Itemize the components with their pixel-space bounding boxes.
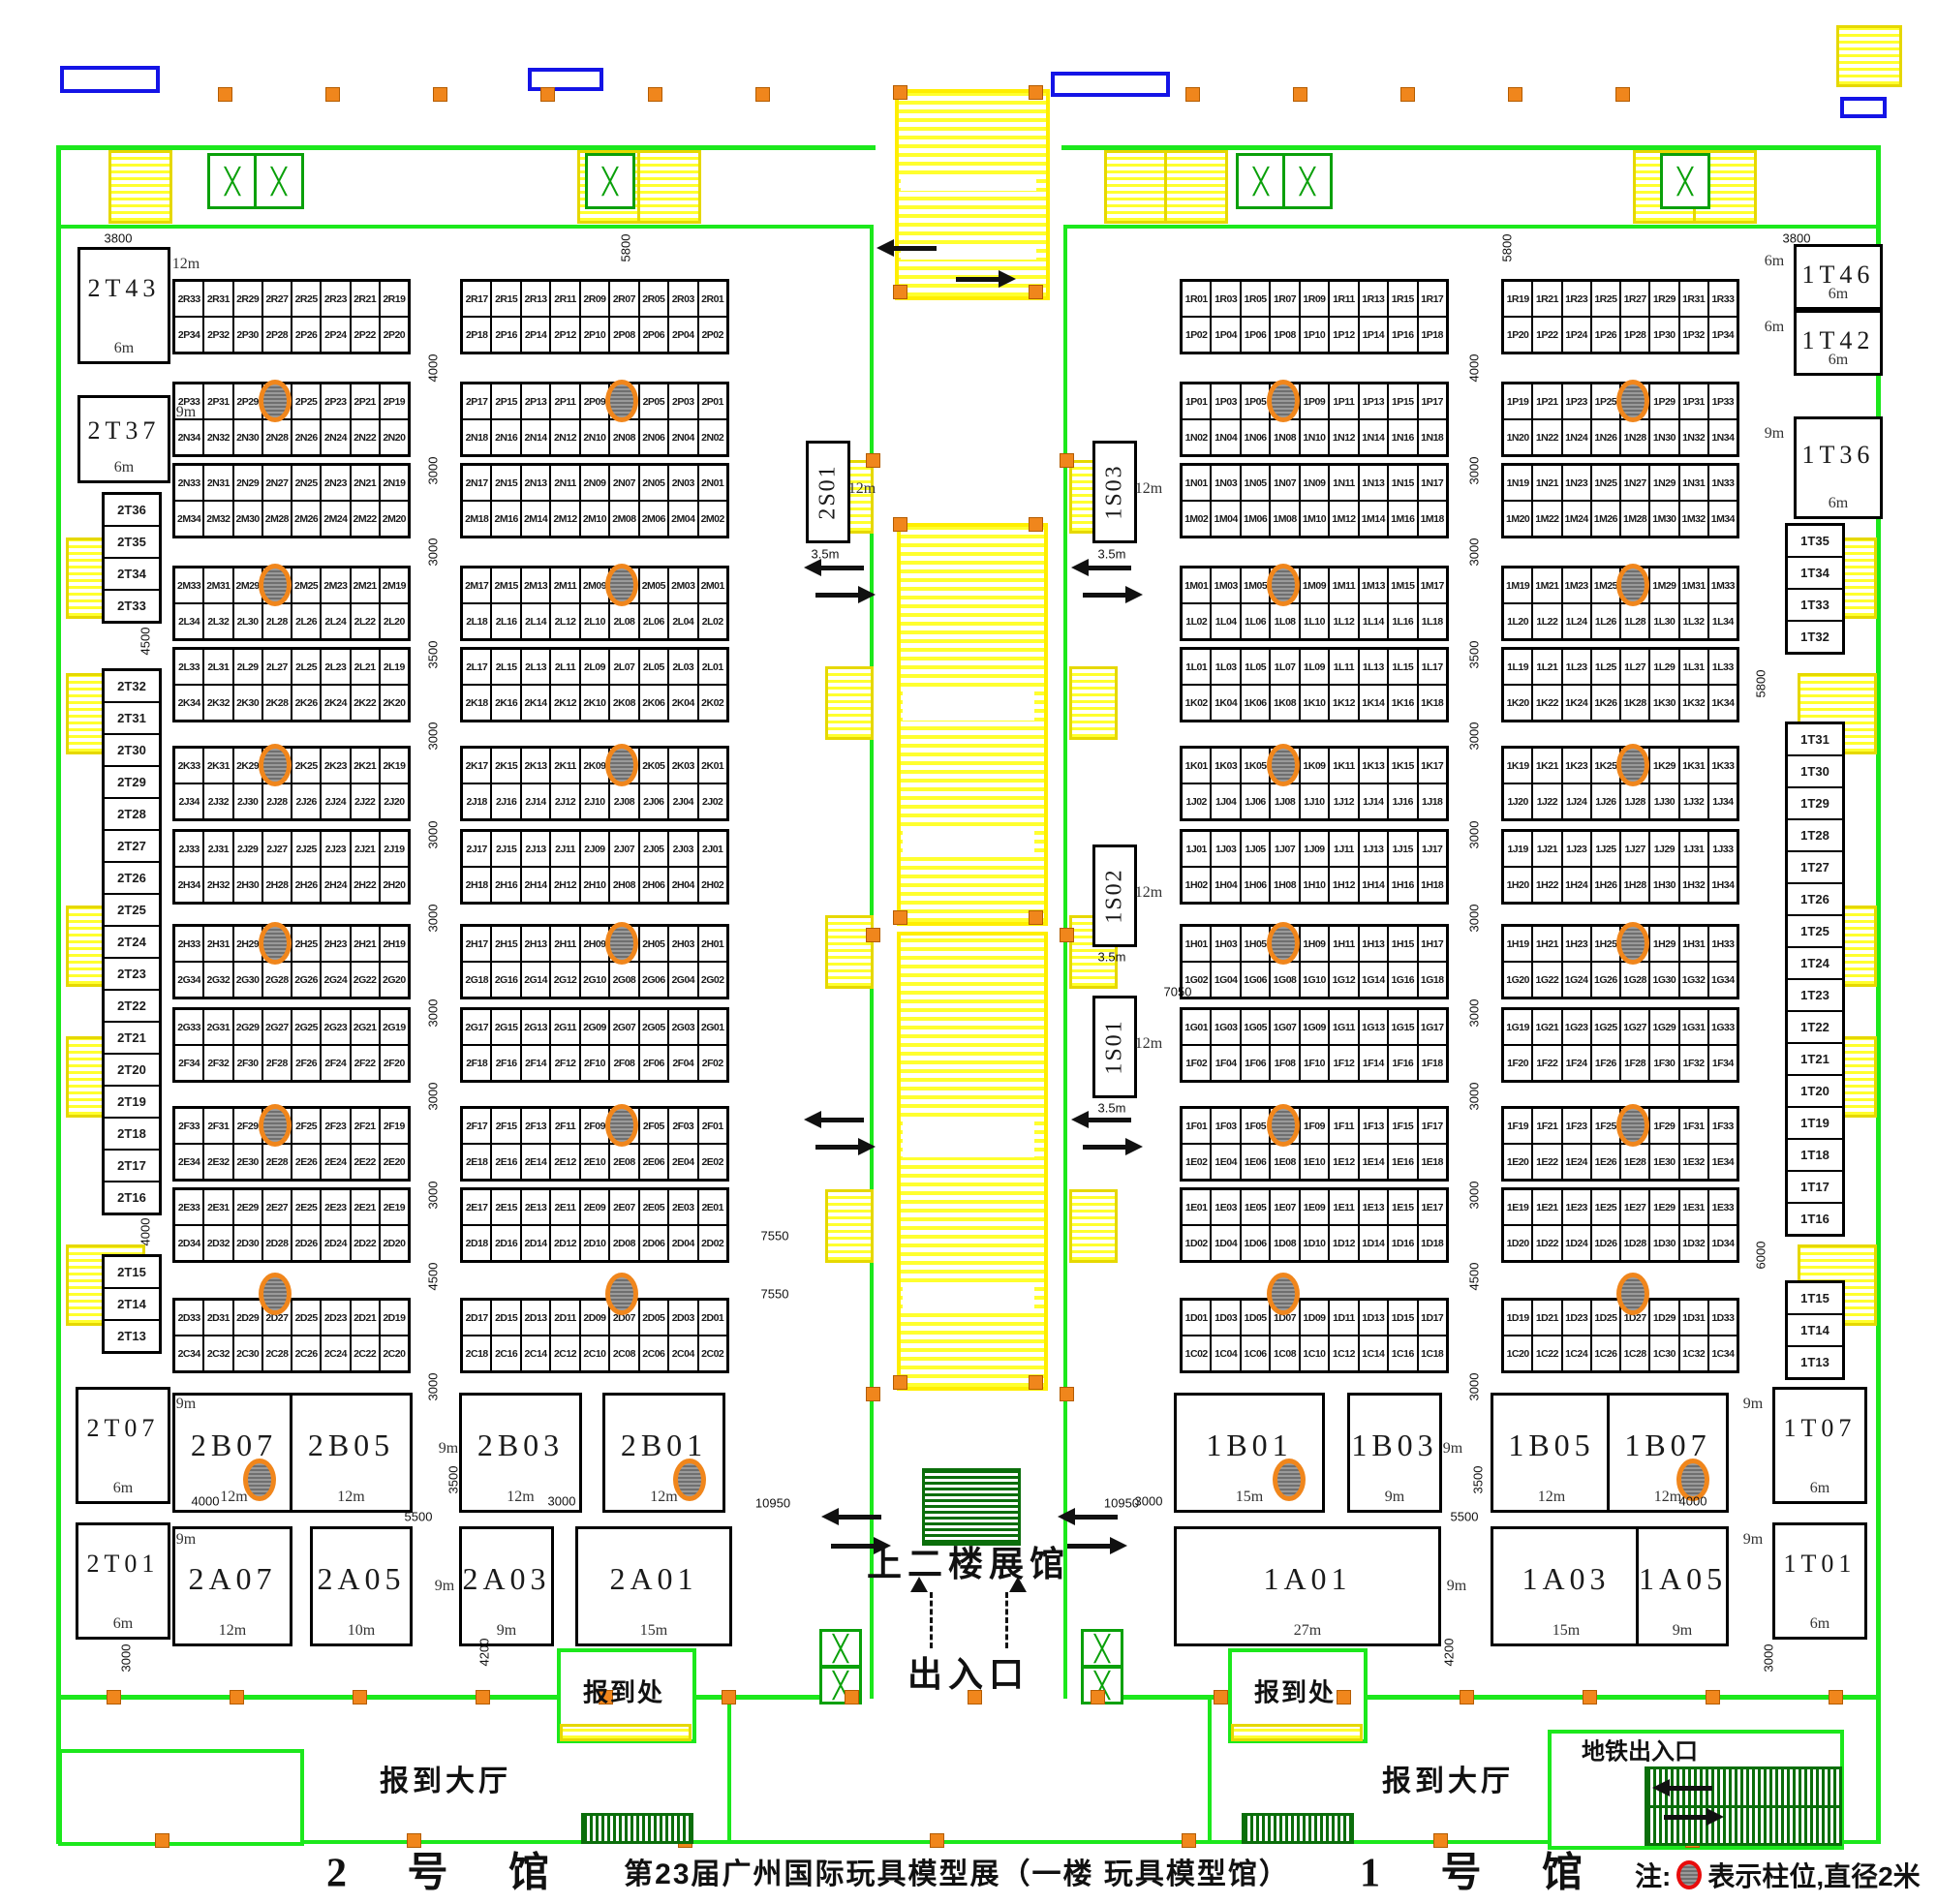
blue-accent: [60, 66, 160, 93]
booth-2H30: 2H30: [232, 866, 263, 904]
booth-2E23: 2E23: [320, 1188, 351, 1226]
booth-2E24: 2E24: [320, 1143, 351, 1181]
booth-1G09: 1G09: [1299, 1008, 1330, 1046]
booth-1L05: 1L05: [1240, 648, 1271, 686]
booth-2J22: 2J22: [350, 783, 381, 820]
booth-2N27: 2N27: [261, 464, 292, 502]
wall-column-icon: [1214, 1690, 1228, 1704]
booth-2C20: 2C20: [379, 1335, 410, 1372]
booth-id: 1S02: [1102, 868, 1128, 923]
booth-1D06: 1D06: [1240, 1224, 1271, 1262]
booth-2N06: 2N06: [638, 418, 669, 456]
booth-1G26: 1G26: [1590, 961, 1621, 998]
stairwell-icon: [637, 150, 701, 224]
booth-2T29: 2T29: [103, 765, 162, 800]
booth-1P08: 1P08: [1269, 316, 1300, 353]
direction-arrow-icon: [1652, 1780, 1714, 1797]
booth-2D17: 2D17: [461, 1299, 492, 1336]
booth-2M32: 2M32: [202, 500, 233, 537]
booth-2R29: 2R29: [232, 280, 263, 318]
booth-1K16: 1K16: [1387, 684, 1418, 722]
booth-1M11: 1M11: [1328, 567, 1359, 604]
direction-arrow-icon: [814, 1139, 876, 1156]
booth-1P33: 1P33: [1707, 383, 1738, 420]
booth-1G18: 1G18: [1417, 961, 1448, 998]
booth-2E06: 2E06: [638, 1143, 669, 1181]
booth-2E18: 2E18: [461, 1143, 492, 1181]
booth-1H01: 1H01: [1181, 925, 1212, 963]
booth-2G13: 2G13: [520, 1008, 551, 1046]
booth-1C20: 1C20: [1502, 1335, 1533, 1372]
booth-1P31: 1P31: [1678, 383, 1709, 420]
booth-2R23: 2R23: [320, 280, 351, 318]
booth-2D34: 2D34: [173, 1224, 204, 1262]
booth-1L15: 1L15: [1387, 648, 1418, 686]
side-booth-strip: 1T351T341T331T32: [1785, 523, 1845, 655]
booth-1L07: 1L07: [1269, 648, 1300, 686]
booth-2M02: 2M02: [697, 500, 728, 537]
dimension-label: 9m: [1765, 425, 1784, 443]
wall-column-icon: [1029, 910, 1043, 925]
booth-2D12: 2D12: [549, 1224, 580, 1262]
booth-2G34: 2G34: [173, 961, 204, 998]
booth-2R15: 2R15: [490, 280, 521, 318]
booth-2C02: 2C02: [697, 1335, 728, 1372]
booth-1E30: 1E30: [1648, 1143, 1679, 1181]
booth-1J29: 1J29: [1648, 830, 1679, 868]
booth-1J02: 1J02: [1181, 783, 1212, 820]
hall1-booth-strip: 1R191R211R231R251R271R291R311R331P201P22…: [1501, 279, 1739, 354]
booth-2E12: 2E12: [549, 1143, 580, 1181]
booth-2C14: 2C14: [520, 1335, 551, 1372]
dimension-label: 3.5m: [1098, 950, 1126, 965]
booth-2P06: 2P06: [638, 316, 669, 353]
booth-2N02: 2N02: [697, 418, 728, 456]
booth-1C10: 1C10: [1299, 1335, 1330, 1372]
booth-2R13: 2R13: [520, 280, 551, 318]
stairwell-icon: [1836, 25, 1902, 87]
booth-2T23: 2T23: [103, 957, 162, 992]
booth-2J34: 2J34: [173, 783, 204, 820]
booth-2L14: 2L14: [520, 602, 551, 640]
booth-1D26: 1D26: [1590, 1224, 1621, 1262]
booth-1P24: 1P24: [1561, 316, 1592, 353]
booth-1D17: 1D17: [1417, 1299, 1448, 1336]
booth-2H20: 2H20: [379, 866, 410, 904]
booth-1N30: 1N30: [1648, 418, 1679, 456]
booth-1F11: 1F11: [1328, 1107, 1359, 1145]
booth-1C22: 1C22: [1531, 1335, 1562, 1372]
booth-2J09: 2J09: [579, 830, 610, 868]
pillar-icon: [1616, 922, 1649, 965]
booth-1R21: 1R21: [1531, 280, 1562, 318]
booth-id: 2B07: [175, 1428, 292, 1463]
booth-1E32: 1E32: [1678, 1143, 1709, 1181]
direction-arrow-icon: [804, 1112, 866, 1129]
booth-2G01: 2G01: [697, 1008, 728, 1046]
booth-2D19: 2D19: [379, 1299, 410, 1336]
booth-1N07: 1N07: [1269, 464, 1300, 502]
booth-2J07: 2J07: [608, 830, 639, 868]
booth-1G04: 1G04: [1210, 961, 1241, 998]
elevator-icon: ╳: [585, 153, 635, 209]
wall-column-icon: [1091, 1690, 1105, 1704]
hall2-booth-strip: 2M332M312M292M252M232M212M192L342L322L30…: [172, 566, 411, 641]
booth-2N16: 2N16: [490, 418, 521, 456]
escalator-icon: [581, 1813, 693, 1844]
wall-column-icon: [893, 517, 907, 532]
booth-1G07: 1G07: [1269, 1008, 1300, 1046]
booth-1C28: 1C28: [1619, 1335, 1650, 1372]
hall1-booth-strip: 1L011L031L051L071L091L111L131L151L171K02…: [1180, 647, 1449, 722]
booth-1K11: 1K11: [1328, 747, 1359, 784]
booth-1G21: 1G21: [1531, 1008, 1562, 1046]
booth-id: 1T01: [1775, 1550, 1864, 1579]
booth-2K03: 2K03: [667, 747, 698, 784]
booth-2L27: 2L27: [261, 648, 292, 686]
dimension-label: 3000: [1467, 457, 1482, 485]
wall-segment: [1063, 225, 1067, 1699]
booth-2N13: 2N13: [520, 464, 551, 502]
booth-2P19: 2P19: [379, 383, 410, 420]
booth-2N03: 2N03: [667, 464, 698, 502]
booth-2C16: 2C16: [490, 1335, 521, 1372]
booth-1C30: 1C30: [1648, 1335, 1679, 1372]
booth-1L13: 1L13: [1358, 648, 1389, 686]
dimension-label: 3000: [426, 1182, 441, 1210]
booth-2G15: 2G15: [490, 1008, 521, 1046]
booth-1M10: 1M10: [1299, 500, 1330, 537]
hall1-booth-strip: 1E191E211E231E251E271E291E311E331D201D22…: [1501, 1187, 1739, 1263]
booth-2H24: 2H24: [320, 866, 351, 904]
booth-1F34: 1F34: [1707, 1044, 1738, 1082]
booth-1K21: 1K21: [1531, 747, 1562, 784]
booth-2D16: 2D16: [490, 1224, 521, 1262]
booth-1F33: 1F33: [1707, 1107, 1738, 1145]
booth-2F02: 2F02: [697, 1044, 728, 1082]
hall2-name: 2 号 馆: [326, 1840, 574, 1899]
booth-1N24: 1N24: [1561, 418, 1592, 456]
booth-1D30: 1D30: [1648, 1224, 1679, 1262]
booth-1F29: 1F29: [1648, 1107, 1679, 1145]
booth-1D10: 1D10: [1299, 1224, 1330, 1262]
booth-2G08: 2G08: [608, 961, 639, 998]
booth-2F24: 2F24: [320, 1044, 351, 1082]
booth-2E13: 2E13: [520, 1188, 551, 1226]
booth-id: 2S01: [815, 464, 842, 519]
booth-size: 6m: [80, 340, 168, 357]
booth-1G33: 1G33: [1707, 1008, 1738, 1046]
booth-2P15: 2P15: [490, 383, 521, 420]
booth-2M17: 2M17: [461, 567, 492, 604]
checkin-hall-left-label: 报到大厅: [380, 1757, 511, 1799]
booth-2M33: 2M33: [173, 567, 204, 604]
booth-2T17: 2T17: [103, 1149, 162, 1183]
booth-2E16: 2E16: [490, 1143, 521, 1181]
booth-1G10: 1G10: [1299, 961, 1330, 998]
wall-column-icon: [845, 1690, 859, 1704]
hall1-booth-strip: 1N191N211N231N251N271N291N311N331M201M22…: [1501, 463, 1739, 538]
booth-2A01: 2A0115m: [575, 1526, 732, 1646]
dimension-label: 12m: [848, 480, 876, 498]
booth-2G21: 2G21: [350, 1008, 381, 1046]
page-title: 第23届广州国际玩具模型展（一楼 玩具模型馆）: [624, 1850, 1290, 1892]
booth-2D14: 2D14: [520, 1224, 551, 1262]
booth-1J17: 1J17: [1417, 830, 1448, 868]
booth-2J11: 2J11: [549, 830, 580, 868]
booth-2H33: 2H33: [173, 925, 204, 963]
booth-1H22: 1H22: [1531, 866, 1562, 904]
booth-1A01: 1A0127m: [1174, 1526, 1441, 1646]
wall-column-icon: [325, 87, 340, 102]
booth-1H28: 1H28: [1619, 866, 1650, 904]
booth-1D09: 1D09: [1299, 1299, 1330, 1336]
booth-1M15: 1M15: [1387, 567, 1418, 604]
booth-2K02: 2K02: [697, 684, 728, 722]
booth-1D25: 1D25: [1590, 1299, 1621, 1336]
booth-1C34: 1C34: [1707, 1335, 1738, 1372]
dimension-label: 9m: [1743, 1396, 1763, 1413]
booth-1K31: 1K31: [1678, 747, 1709, 784]
booth-2P02: 2P02: [697, 316, 728, 353]
booth-1D04: 1D04: [1210, 1224, 1241, 1262]
booth-2T37: 2T376m: [77, 395, 170, 483]
booth-1J16: 1J16: [1387, 783, 1418, 820]
booth-1B01: 1B0115m: [1174, 1393, 1325, 1513]
booth-1D08: 1D08: [1269, 1224, 1300, 1262]
booth-1K32: 1K32: [1678, 684, 1709, 722]
booth-1K34: 1K34: [1707, 684, 1738, 722]
booth-2G23: 2G23: [320, 1008, 351, 1046]
booth-2M28: 2M28: [261, 500, 292, 537]
booth-2C12: 2C12: [549, 1335, 580, 1372]
booth-1M02: 1M02: [1181, 500, 1212, 537]
booth-2E02: 2E02: [697, 1143, 728, 1181]
booth-2P11: 2P11: [549, 383, 580, 420]
dimension-label: 4000: [426, 354, 441, 383]
direction-arrow-icon: [954, 271, 1016, 289]
booth-1N11: 1N11: [1328, 464, 1359, 502]
booth-id: 2A05: [313, 1561, 410, 1597]
booth-id: 1A03: [1493, 1561, 1639, 1597]
booth-2H19: 2H19: [379, 925, 410, 963]
booth-2K05: 2K05: [638, 747, 669, 784]
booth-id: 1T07: [1775, 1414, 1864, 1443]
booth-1P19: 1P19: [1502, 383, 1533, 420]
booth-1E23: 1E23: [1561, 1188, 1592, 1226]
booth-1J15: 1J15: [1387, 830, 1418, 868]
booth-2G26: 2G26: [291, 961, 322, 998]
booth-2F28: 2F28: [261, 1044, 292, 1082]
dimension-label: 3000: [426, 999, 441, 1028]
booth-2L04: 2L04: [667, 602, 698, 640]
pillar-icon: [1267, 1273, 1300, 1315]
booth-1G31: 1G31: [1678, 1008, 1709, 1046]
booth-1M32: 1M32: [1678, 500, 1709, 537]
hall1-booth-strip: 1J191J211J231J251J271J291J311J331H201H22…: [1501, 829, 1739, 905]
booth-2H05: 2H05: [638, 925, 669, 963]
wall-column-icon: [107, 1690, 121, 1704]
booth-1J14: 1J14: [1358, 783, 1389, 820]
booth-1G24: 1G24: [1561, 961, 1592, 998]
booth-1G27: 1G27: [1619, 1008, 1650, 1046]
booth-1T29: 1T29: [1786, 786, 1845, 821]
stairwell-icon: [1164, 150, 1228, 224]
booth-1H12: 1H12: [1328, 866, 1359, 904]
booth-2M34: 2M34: [173, 500, 204, 537]
dimension-label: 3000: [426, 821, 441, 849]
booth-1D28: 1D28: [1619, 1224, 1650, 1262]
direction-arrow-icon: [1662, 1809, 1724, 1827]
booth-1N32: 1N32: [1678, 418, 1709, 456]
booth-2D24: 2D24: [320, 1224, 351, 1262]
booth-size: 12m: [175, 1622, 290, 1640]
booth-size: 12m: [292, 1489, 410, 1506]
booth-1P26: 1P26: [1590, 316, 1621, 353]
direction-arrow-icon: [1065, 1538, 1127, 1555]
booth-1H08: 1H08: [1269, 866, 1300, 904]
booth-1C06: 1C06: [1240, 1335, 1271, 1372]
hall2-booth-strip: 2L172L152L132L112L092L072L052L032L012K18…: [460, 647, 729, 722]
direction-arrow-icon: [1071, 1112, 1133, 1129]
booth-1P14: 1P14: [1358, 316, 1389, 353]
booth-1M28: 1M28: [1619, 500, 1650, 537]
booth-2J30: 2J30: [232, 783, 263, 820]
booth-1N19: 1N19: [1502, 464, 1533, 502]
booth-1F18: 1F18: [1417, 1044, 1448, 1082]
wall-column-icon: [353, 1690, 367, 1704]
booth-2J10: 2J10: [579, 783, 610, 820]
booth-1G08: 1G08: [1269, 961, 1300, 998]
booth-2N33: 2N33: [173, 464, 204, 502]
booth-2J29: 2J29: [232, 830, 263, 868]
booth-2F04: 2F04: [667, 1044, 698, 1082]
booth-2M16: 2M16: [490, 500, 521, 537]
booth-2D02: 2D02: [697, 1224, 728, 1262]
booth-1F24: 1F24: [1561, 1044, 1592, 1082]
booth-2K18: 2K18: [461, 684, 492, 722]
booth-size: 27m: [1177, 1622, 1438, 1640]
dimension-label: 12m: [1135, 884, 1162, 902]
elevator-icon: ╳: [254, 153, 304, 209]
dimension-label: 3000: [426, 905, 441, 933]
wall-column-icon: [1615, 87, 1630, 102]
booth-2N23: 2N23: [320, 464, 351, 502]
booth-2N18: 2N18: [461, 418, 492, 456]
pillar-icon: [243, 1459, 276, 1501]
booth-1D11: 1D11: [1328, 1299, 1359, 1336]
booth-2H31: 2H31: [202, 925, 233, 963]
booth-2T13: 2T13: [103, 1319, 162, 1354]
booth-2T22: 2T22: [103, 989, 162, 1024]
booth-1K12: 1K12: [1328, 684, 1359, 722]
booth-1K10: 1K10: [1299, 684, 1330, 722]
hall1-booth-strip: 1K011K031K051K091K111K131K151K171J021J04…: [1180, 746, 1449, 821]
booth-2M10: 2M10: [579, 500, 610, 537]
pillar-icon: [1616, 1104, 1649, 1147]
booth-2D20: 2D20: [379, 1224, 410, 1262]
booth-1D20: 1D20: [1502, 1224, 1533, 1262]
booth-2N11: 2N11: [549, 464, 580, 502]
booth-2E28: 2E28: [261, 1143, 292, 1181]
booth-2T19: 2T19: [103, 1085, 162, 1120]
wall-column-icon: [218, 87, 232, 102]
booth-1P02: 1P02: [1181, 316, 1212, 353]
booth-2N29: 2N29: [232, 464, 263, 502]
booth-1T23: 1T23: [1786, 978, 1845, 1013]
note-prefix: 注:: [1635, 1856, 1671, 1894]
booth-2M18: 2M18: [461, 500, 492, 537]
booth-1J27: 1J27: [1619, 830, 1650, 868]
booth-2R19: 2R19: [379, 280, 410, 318]
booth-2T35: 2T35: [103, 525, 162, 560]
booth-1E14: 1E14: [1358, 1143, 1389, 1181]
booth-2D15: 2D15: [490, 1299, 521, 1336]
booth-1F10: 1F10: [1299, 1044, 1330, 1082]
booth-2P28: 2P28: [261, 316, 292, 353]
booth-2L23: 2L23: [320, 648, 351, 686]
booth-1E10: 1E10: [1299, 1143, 1330, 1181]
booth-1E04: 1E04: [1210, 1143, 1241, 1181]
booth-2T28: 2T28: [103, 797, 162, 832]
booth-2P13: 2P13: [520, 383, 551, 420]
booth-1M29: 1M29: [1648, 567, 1679, 604]
booth-1H33: 1H33: [1707, 925, 1738, 963]
booth-1E28: 1E28: [1619, 1143, 1650, 1181]
booth-2J08: 2J08: [608, 783, 639, 820]
dimension-label: 4500: [138, 628, 153, 656]
booth-1G23: 1G23: [1561, 1008, 1592, 1046]
booth-2F05: 2F05: [638, 1107, 669, 1145]
direction-arrow-icon: [1081, 587, 1143, 604]
booth-2M12: 2M12: [549, 500, 580, 537]
wall-column-icon: [1060, 453, 1074, 468]
booth-1D34: 1D34: [1707, 1224, 1738, 1262]
dimension-label: 3000: [1762, 1644, 1776, 1673]
booth-1K22: 1K22: [1531, 684, 1562, 722]
booth-2J01: 2J01: [697, 830, 728, 868]
wall-column-icon: [893, 1375, 907, 1390]
dimension-label: 3000: [1135, 1494, 1163, 1509]
booth-1L16: 1L16: [1387, 602, 1418, 640]
booth-size: 9m: [462, 1622, 551, 1640]
booth-2E04: 2E04: [667, 1143, 698, 1181]
booth-2M06: 2M06: [638, 500, 669, 537]
pillar-icon: [259, 564, 292, 606]
booth-2L11: 2L11: [549, 648, 580, 686]
booth-2G29: 2G29: [232, 1008, 263, 1046]
checkin-counter-left: [560, 1724, 692, 1741]
booth-1P32: 1P32: [1678, 316, 1709, 353]
booth-1G13: 1G13: [1358, 1008, 1389, 1046]
booth-1H11: 1H11: [1328, 925, 1359, 963]
booth-1N02: 1N02: [1181, 418, 1212, 456]
hall2-booth-strip: 2L332L312L292L272L252L232L212L192K342K32…: [172, 647, 411, 722]
wall-column-icon: [1460, 1690, 1474, 1704]
booth-2G06: 2G06: [638, 961, 669, 998]
booth-1L25: 1L25: [1590, 648, 1621, 686]
booth-id: 2A01: [578, 1561, 729, 1597]
booth-1L01: 1L01: [1181, 648, 1212, 686]
booth-2N25: 2N25: [291, 464, 322, 502]
booth-2R11: 2R11: [549, 280, 580, 318]
dimension-label: 3000: [426, 1373, 441, 1401]
booth-2H26: 2H26: [291, 866, 322, 904]
booth-1E33: 1E33: [1707, 1188, 1738, 1226]
booth-2M08: 2M08: [608, 500, 639, 537]
dimension-label: 4500: [1467, 1263, 1482, 1291]
booth-2F21: 2F21: [350, 1107, 381, 1145]
